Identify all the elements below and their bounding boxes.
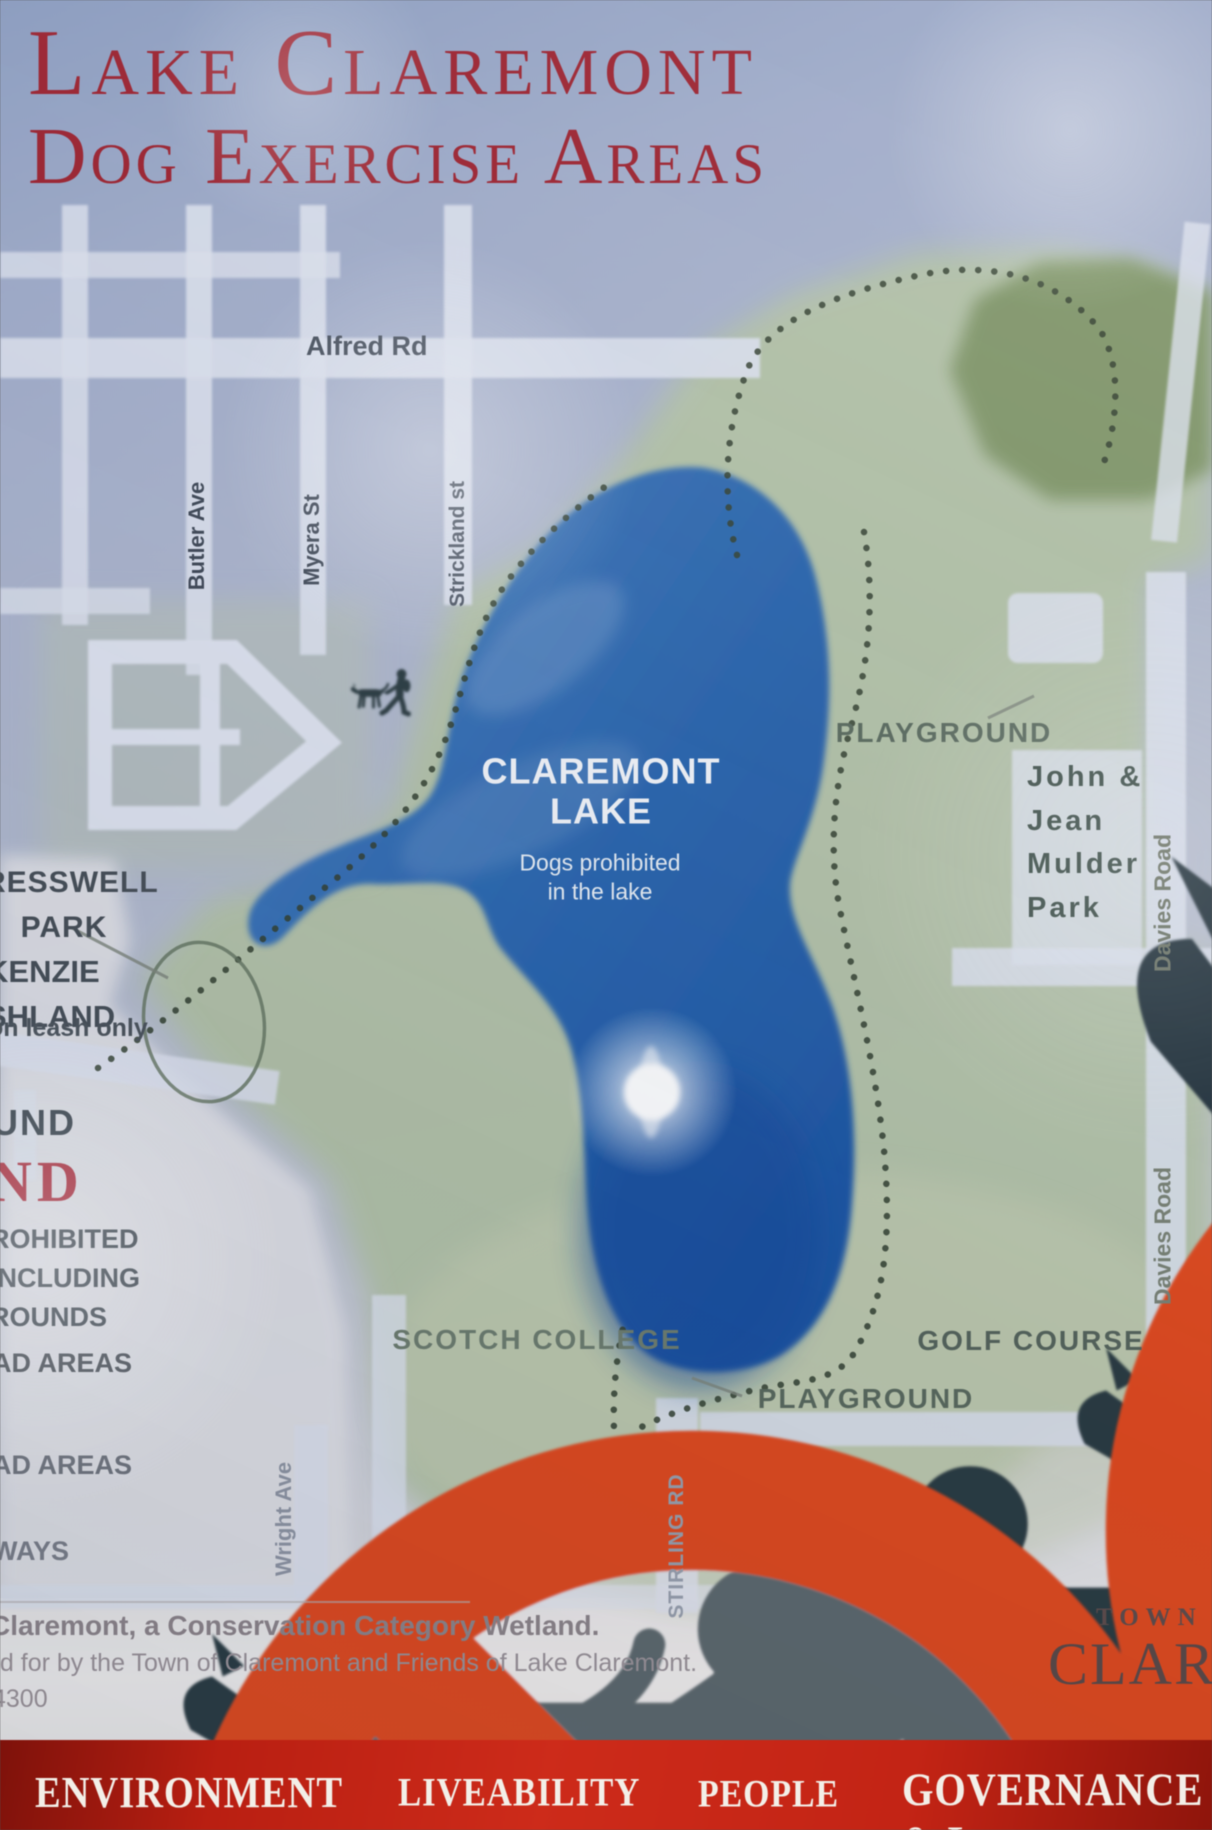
footer-wetland-text: Claremont, a Conservation Category Wetla… (0, 1610, 599, 1642)
park-sign-photo: Lake Claremont Dog Exercise Areas Alfred… (0, 0, 1212, 1830)
town-of-claremont-wordmark-town: TOWN (1096, 1604, 1203, 1632)
legend-heading-cut: ND (0, 1148, 84, 1215)
banner-item-liveability: LIVEABILITY (398, 1770, 640, 1816)
footer-phone-fragment: 4300 (0, 1685, 48, 1714)
banner-item-environment: ENVIRONMENT (35, 1766, 343, 1818)
scotch-college-label: SCOTCH COLLEGE (392, 1324, 681, 1356)
street-label-butler-ave: Butler Ave (184, 482, 210, 590)
playground-label-bottom: PLAYGROUND (758, 1383, 975, 1415)
town-values-banner: ENVIRONMENT LIVEABILITY PEOPLE GOVERNANC… (0, 1740, 1212, 1830)
mckenzie-line1: KENZIE (0, 950, 115, 995)
town-of-claremont-wordmark-claremont: CLAREM (1048, 1630, 1212, 1699)
cresswell-park-label: RESSWELL PARK (0, 860, 144, 950)
legend-line-grounds: ROUNDS (0, 1298, 140, 1337)
lake-name-line2: LAKE (482, 791, 721, 831)
leash-only-note: on leash only (0, 1014, 148, 1043)
footer-divider-line (0, 1601, 470, 1603)
mulder-park-label: John & Jean Mulder Park (1027, 756, 1212, 930)
playground-label-right: PLAYGROUND (836, 717, 1053, 749)
legend-lead-areas-2: AD AREAS (0, 1450, 132, 1481)
legend-ways: WAYS (0, 1536, 69, 1567)
lake-note-line2: in the lake (519, 877, 680, 906)
golf-course-label: GOLF COURSE (917, 1325, 1144, 1357)
cresswell-line2: PARK (0, 905, 144, 950)
lake-note-label: Dogs prohibited in the lake (519, 848, 680, 906)
banner-item-people: PEOPLE (698, 1771, 839, 1816)
lake-name-line1: CLAREMONT (482, 751, 721, 791)
street-label-myera-st: Myera St (299, 494, 325, 586)
mulder-park-line2: Mulder Park (1027, 843, 1212, 930)
legend-prohibited-block: ROHIBITED INCLUDING ROUNDS (0, 1220, 140, 1337)
street-label-strickland-st: Strickland st (446, 481, 470, 607)
lake-note-line1: Dogs prohibited (519, 848, 680, 877)
sign-title-line1: Lake Claremont (28, 16, 758, 110)
cresswell-line1: RESSWELL (0, 860, 144, 905)
banner-item-governance: GOVERNANCE & L (902, 1764, 1203, 1830)
legend-lead-areas-1: AD AREAS (0, 1348, 132, 1379)
footer-cared-text: ed for by the Town of Claremont and Frie… (0, 1649, 697, 1678)
street-label-stirling-rd: STIRLING RD (665, 1473, 689, 1618)
street-label-wright-ave: Wright Ave (271, 1462, 297, 1576)
sign-title-line2: Dog Exercise Areas (28, 116, 768, 197)
playground-label-left-cut: UND (0, 1102, 76, 1144)
street-label-alfred-rd: Alfred Rd (306, 331, 428, 362)
legend-line-including: INCLUDING (0, 1259, 140, 1298)
legend-line-prohibited: ROHIBITED (0, 1220, 140, 1259)
mulder-park-line1: John & Jean (1027, 756, 1212, 843)
lake-name-label: CLAREMONT LAKE (482, 751, 721, 830)
street-label-davies-road-lower: Davies Road (1150, 1167, 1177, 1305)
